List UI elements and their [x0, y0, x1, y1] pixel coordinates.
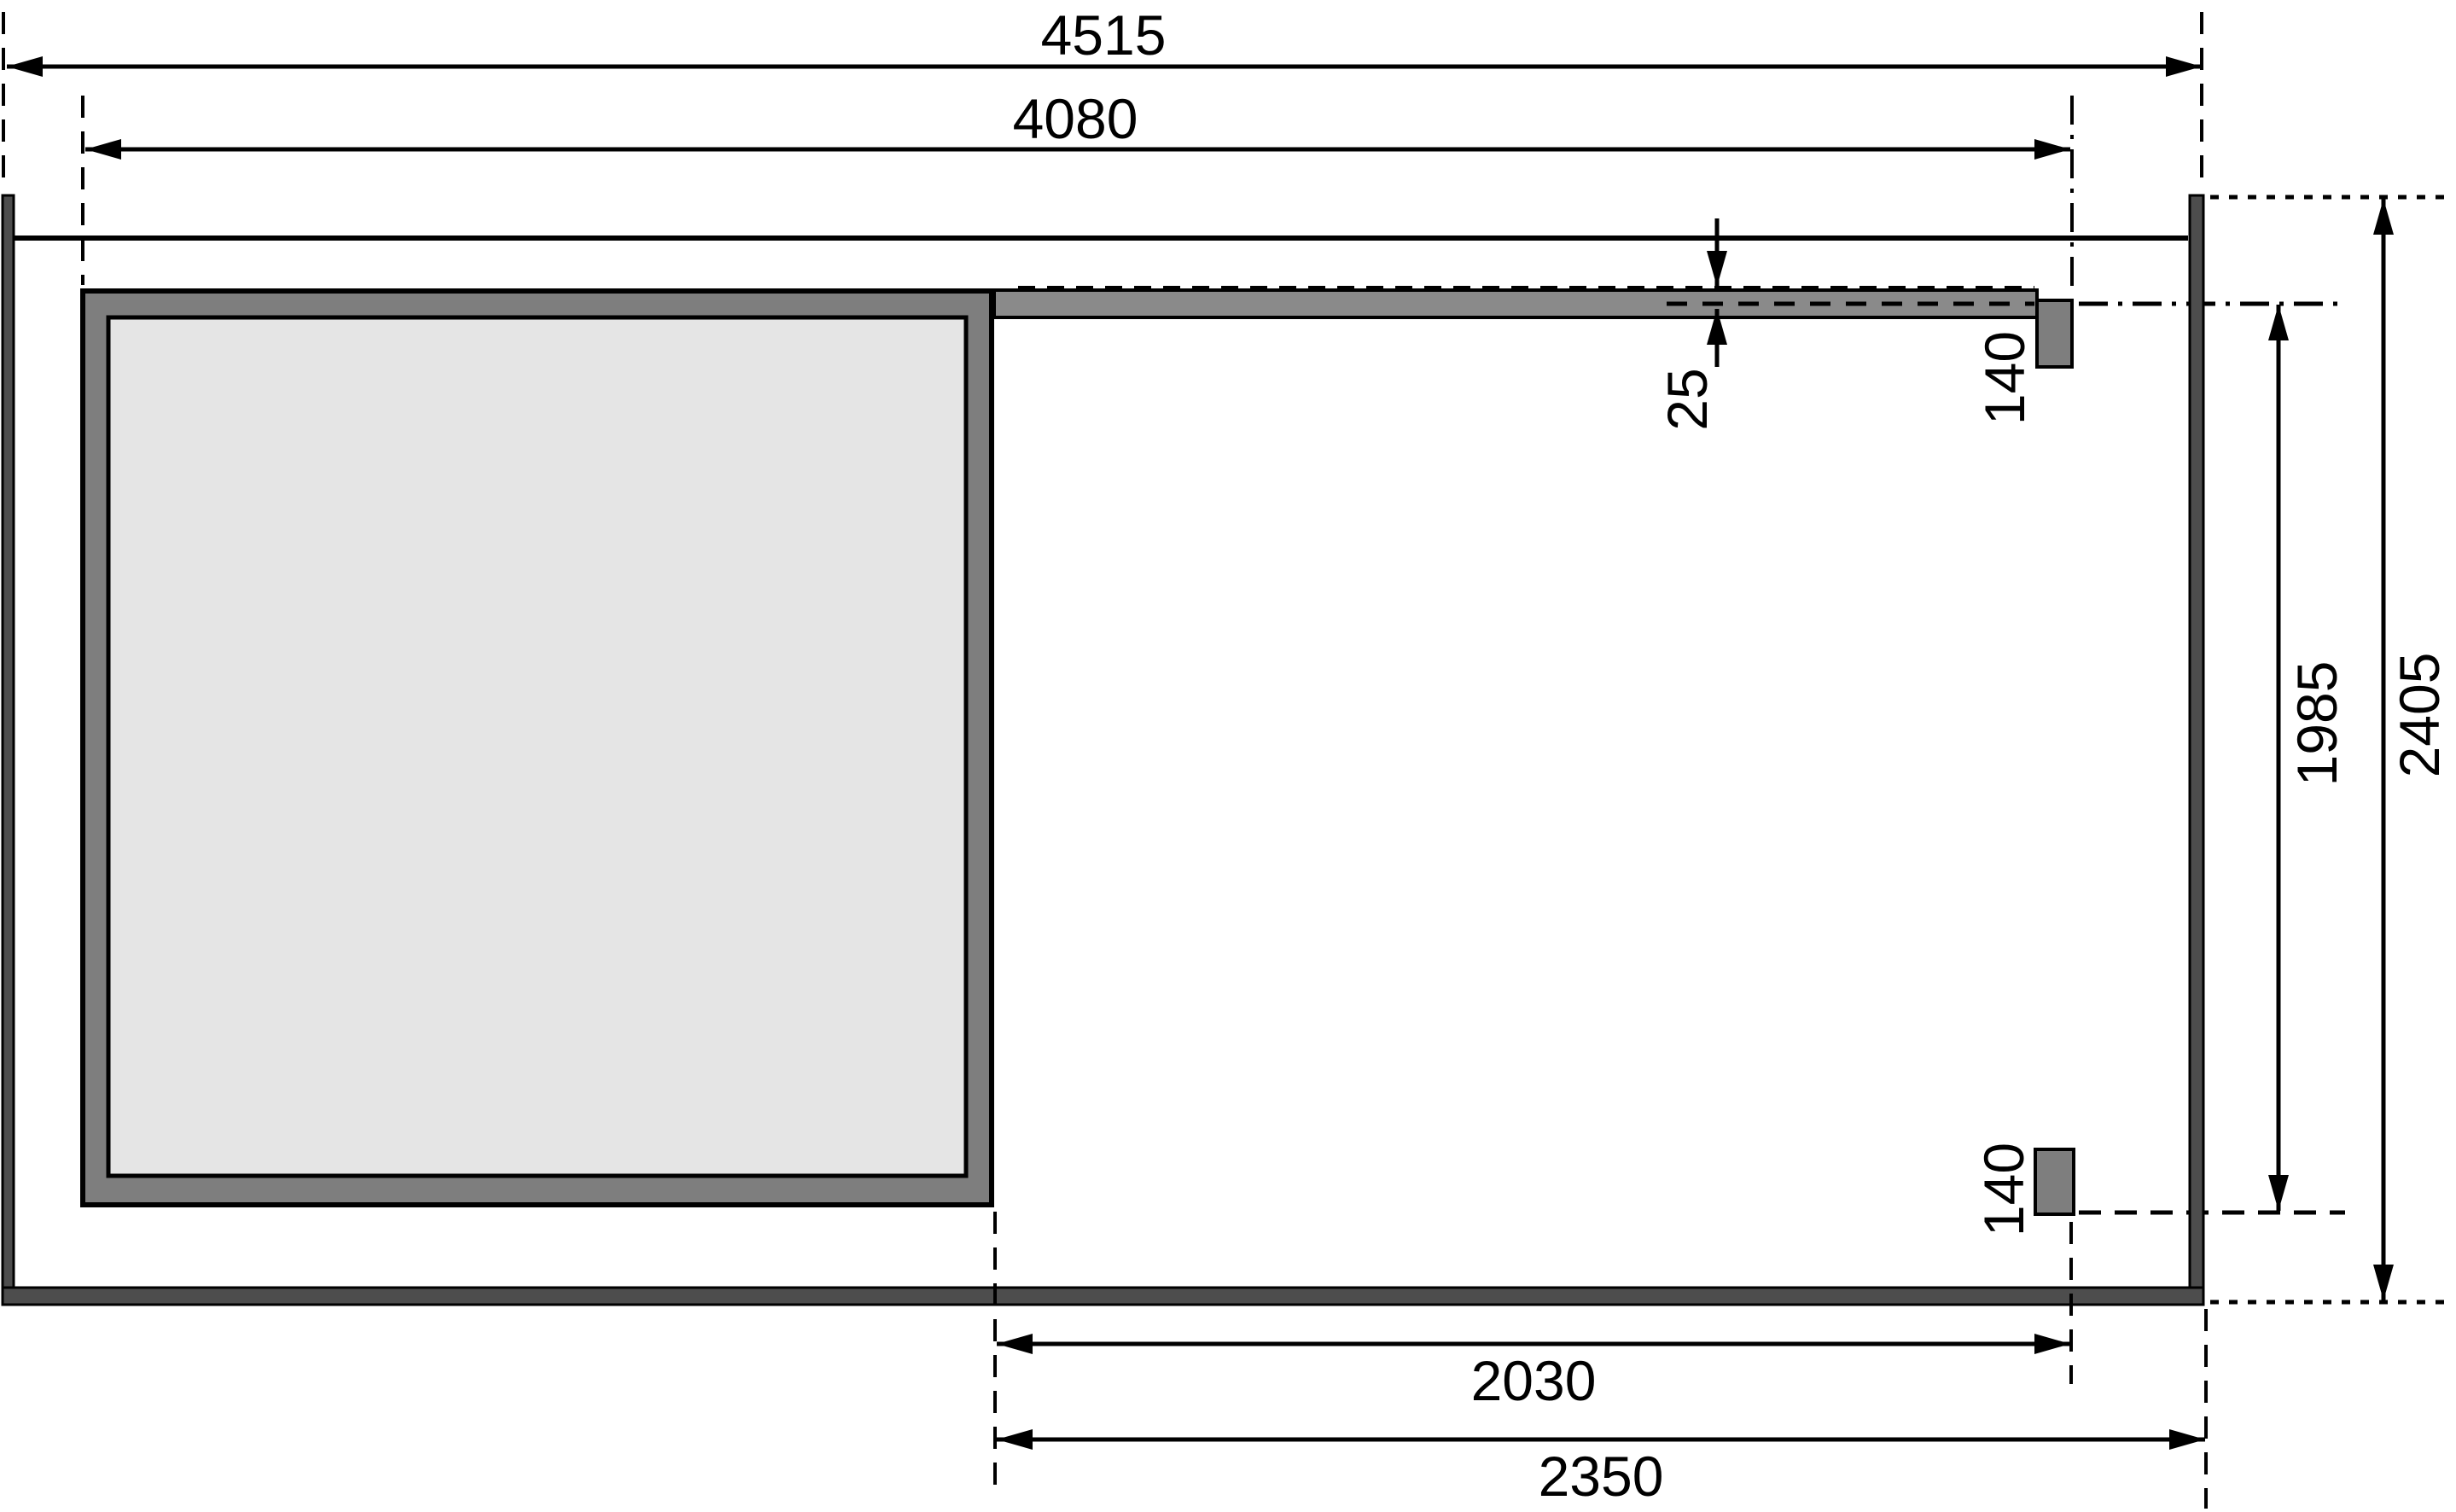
- left-frame-wall: [3, 195, 14, 1305]
- dim-total-width-label: 4515: [1041, 3, 1167, 67]
- dim-total-depth-label: 2405: [2388, 653, 2451, 778]
- canopy-roof-beam: [994, 290, 2037, 317]
- dim-post-span: 1985: [2278, 305, 2348, 1211]
- drawing-canvas: 4515 4080 25 140 140 1985 2405 2030 2350: [0, 0, 2456, 1512]
- dim-roof-board-label: 25: [1656, 368, 1719, 430]
- canopy-post-top: [2037, 300, 2072, 367]
- dim-roof-board: 25: [1656, 218, 1719, 431]
- dim-post-top-label: 140: [1973, 331, 2036, 425]
- dim-total-depth: 2405: [2383, 199, 2451, 1300]
- front-frame-wall: [3, 1288, 2203, 1305]
- shed-floor: [108, 317, 966, 1176]
- dim-canopy-clear-label: 2030: [1471, 1349, 1597, 1412]
- dim-post-bottom-label: 140: [1972, 1143, 2035, 1236]
- dim-total-width: 4515: [7, 3, 2202, 67]
- dim-post-span-label: 1985: [2285, 661, 2348, 787]
- dim-shed-plus-canopy-label: 4080: [1013, 87, 1138, 150]
- canopy-post-bottom: [2035, 1149, 2074, 1214]
- floor-plan-drawing: 4515 4080 25 140 140 1985 2405 2030 2350: [0, 0, 2456, 1512]
- dim-canopy-clear: 2030: [997, 1344, 2070, 1412]
- dim-shed-plus-canopy: 4080: [85, 87, 2070, 150]
- dim-canopy-width-label: 2350: [1539, 1445, 1664, 1508]
- dim-canopy-width: 2350: [997, 1439, 2205, 1508]
- right-frame-wall: [2190, 195, 2203, 1305]
